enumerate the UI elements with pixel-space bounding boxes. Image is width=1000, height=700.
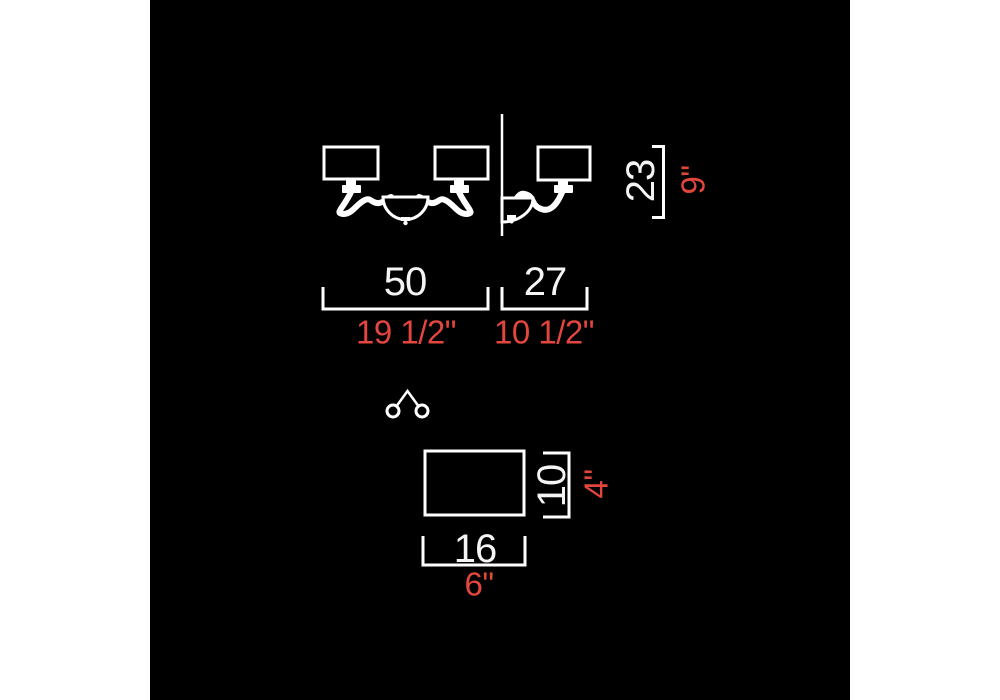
diagram-canvas: 50 27 19 1/2" 10 1/2" 23 9" 10 4" 16 6": [150, 0, 850, 700]
side-view-shade: [538, 147, 590, 180]
front-left-shade: [324, 147, 378, 179]
front-right-shade: [435, 147, 488, 179]
fixture-width-imperial-label: 19 1/2": [356, 316, 456, 349]
page: 50 27 19 1/2" 10 1/2" 23 9" 10 4" 16 6": [0, 0, 1000, 700]
fixture-height-imperial-label: 9": [677, 165, 710, 194]
side-view-bowl: [502, 198, 533, 224]
top-view-icon: [387, 391, 428, 417]
shade-width-metric-label: 16: [454, 529, 497, 569]
shade-height-imperial-label: 4": [580, 469, 613, 498]
fixture-width-metric-label: 50: [384, 262, 427, 302]
fixture-height-metric-label: 23: [621, 160, 661, 203]
shade-detail-rect: [425, 451, 524, 515]
fixture-depth-metric-label: 27: [524, 262, 567, 302]
front-view-bowl: [383, 197, 428, 225]
fixture-depth-imperial-label: 10 1/2": [494, 316, 594, 349]
shade-height-metric-label: 10: [532, 465, 572, 508]
shade-width-imperial-label: 6": [464, 568, 493, 601]
